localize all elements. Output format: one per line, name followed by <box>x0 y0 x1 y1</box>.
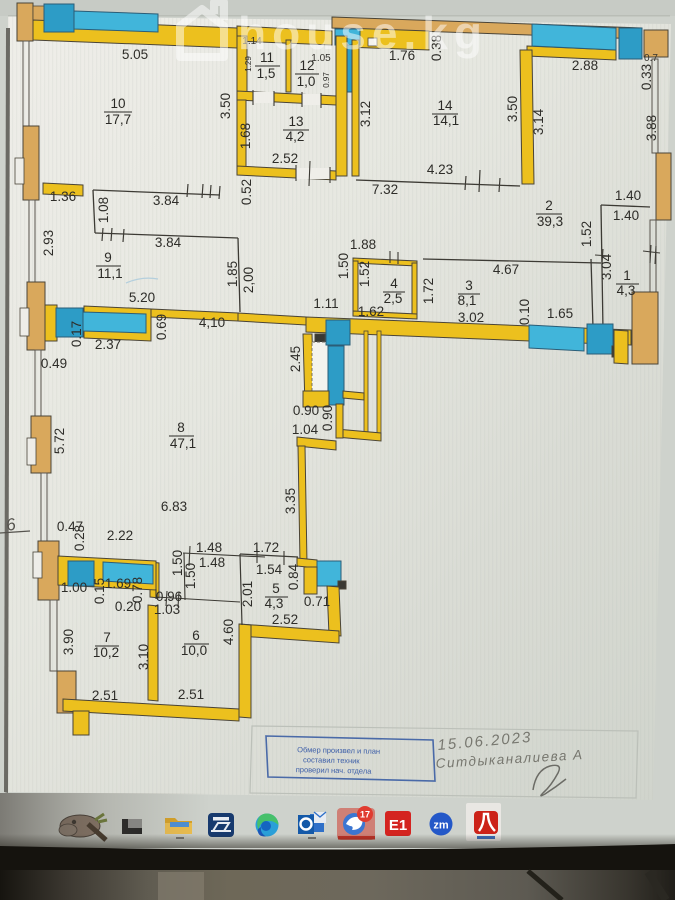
svg-text:1.72: 1.72 <box>421 278 436 304</box>
svg-text:1.50: 1.50 <box>336 253 351 279</box>
svg-text:3.84: 3.84 <box>153 193 180 208</box>
svg-text:17,7: 17,7 <box>105 112 131 127</box>
svg-text:1.00: 1.00 <box>61 580 87 595</box>
svg-text:E1: E1 <box>389 817 407 834</box>
svg-text:0.33: 0.33 <box>639 64 654 90</box>
svg-text:0.49: 0.49 <box>41 356 67 371</box>
svg-text:1.04: 1.04 <box>292 422 319 437</box>
svg-text:13: 13 <box>288 114 303 129</box>
svg-text:10,2: 10,2 <box>93 645 119 660</box>
svg-text:0.78: 0.78 <box>130 577 145 603</box>
svg-text:проверил нач. отдела: проверил нач. отдела <box>296 765 373 776</box>
svg-text:4,2: 4,2 <box>286 129 305 144</box>
svg-text:2,00: 2,00 <box>241 267 256 293</box>
svg-text:1.54: 1.54 <box>256 562 283 577</box>
svg-text:8,1: 8,1 <box>458 293 477 308</box>
svg-text:3.84: 3.84 <box>155 235 182 250</box>
svg-text:0.90: 0.90 <box>320 405 335 431</box>
svg-text:4,3: 4,3 <box>617 283 636 298</box>
svg-text:4,3: 4,3 <box>265 596 284 611</box>
svg-text:6.83: 6.83 <box>161 499 187 514</box>
svg-text:zm: zm <box>433 820 449 832</box>
svg-text:4,10: 4,10 <box>199 315 225 330</box>
svg-text:3.14: 3.14 <box>531 108 546 135</box>
svg-text:17: 17 <box>360 810 370 820</box>
svg-text:1.36: 1.36 <box>50 189 76 204</box>
svg-text:10,0: 10,0 <box>181 643 207 658</box>
svg-text:0.69: 0.69 <box>154 314 169 340</box>
svg-text:0.10: 0.10 <box>517 299 532 325</box>
svg-text:2: 2 <box>545 198 553 213</box>
svg-text:3.50: 3.50 <box>505 96 520 122</box>
svg-text:2.93: 2.93 <box>41 230 56 256</box>
svg-text:0.84: 0.84 <box>286 563 301 590</box>
svg-text:2.52: 2.52 <box>272 612 298 627</box>
svg-text:0.15: 0.15 <box>92 578 107 604</box>
svg-text:1: 1 <box>623 268 631 283</box>
svg-text:7.32: 7.32 <box>372 182 398 197</box>
svg-text:3.02: 3.02 <box>458 310 484 325</box>
svg-text:3.90: 3.90 <box>61 629 76 655</box>
svg-text:3.35: 3.35 <box>283 488 298 514</box>
svg-text:5.72: 5.72 <box>52 428 67 454</box>
svg-text:1.69: 1.69 <box>105 576 131 591</box>
svg-text:14,1: 14,1 <box>433 113 459 128</box>
svg-text:1.40: 1.40 <box>613 208 639 223</box>
svg-text:3.50: 3.50 <box>218 93 233 119</box>
svg-text:house.kg: house.kg <box>238 7 488 59</box>
svg-text:2.01: 2.01 <box>240 581 255 607</box>
svg-text:2.45: 2.45 <box>288 346 303 372</box>
svg-text:3.12: 3.12 <box>358 101 373 127</box>
svg-text:11,1: 11,1 <box>97 266 122 281</box>
svg-text:3.04: 3.04 <box>599 253 614 280</box>
svg-text:2.22: 2.22 <box>107 528 133 543</box>
svg-text:составил техник: составил техник <box>303 755 361 765</box>
svg-text:0.97: 0.97 <box>322 72 331 88</box>
svg-text:8: 8 <box>177 420 185 435</box>
svg-text:1.40: 1.40 <box>615 188 641 203</box>
svg-text:2.51: 2.51 <box>178 687 204 702</box>
svg-text:3.88: 3.88 <box>644 115 659 141</box>
svg-text:5.20: 5.20 <box>129 290 155 305</box>
svg-text:0.52: 0.52 <box>239 179 254 205</box>
svg-text:2,5: 2,5 <box>384 291 403 306</box>
svg-text:2.37: 2.37 <box>95 337 121 352</box>
svg-text:0.90: 0.90 <box>293 403 319 418</box>
svg-text:0.7: 0.7 <box>644 53 658 64</box>
svg-text:1.52: 1.52 <box>357 261 372 287</box>
svg-text:5.05: 5.05 <box>122 47 148 62</box>
svg-text:1.52: 1.52 <box>579 221 594 247</box>
svg-text:2.52: 2.52 <box>272 151 298 166</box>
svg-text:1.48: 1.48 <box>199 555 225 570</box>
svg-text:1.68: 1.68 <box>238 123 253 149</box>
svg-text:2.88: 2.88 <box>572 58 598 73</box>
svg-text:39,3: 39,3 <box>537 214 563 229</box>
svg-text:1,0: 1,0 <box>297 74 316 89</box>
svg-text:1.65: 1.65 <box>547 306 573 321</box>
svg-text:7: 7 <box>103 630 111 645</box>
svg-text:0.71: 0.71 <box>304 594 330 609</box>
svg-text:1.08: 1.08 <box>96 197 111 223</box>
svg-text:9: 9 <box>104 250 112 265</box>
svg-text:4: 4 <box>390 276 398 291</box>
svg-text:4.23: 4.23 <box>427 162 453 177</box>
svg-text:1,5: 1,5 <box>257 66 276 81</box>
svg-text:0.17: 0.17 <box>69 321 84 347</box>
svg-text:Обмер произвел и план: Обмер произвел и план <box>297 745 380 756</box>
svg-text:6: 6 <box>192 628 200 643</box>
svg-text:1.62: 1.62 <box>358 304 384 319</box>
svg-text:14: 14 <box>437 98 453 113</box>
svg-text:4.60: 4.60 <box>221 619 236 645</box>
svg-text:1.50: 1.50 <box>183 563 198 589</box>
svg-text:47,1: 47,1 <box>170 436 196 451</box>
svg-text:1.03: 1.03 <box>154 602 180 617</box>
svg-text:1.72: 1.72 <box>253 540 279 555</box>
svg-text:2.51: 2.51 <box>92 688 118 703</box>
svg-text:3.10: 3.10 <box>136 644 151 670</box>
svg-text:1.48: 1.48 <box>196 540 222 555</box>
svg-text:1.11: 1.11 <box>313 296 338 311</box>
svg-text:3: 3 <box>465 278 473 293</box>
svg-text:0.28: 0.28 <box>72 525 87 551</box>
svg-text:1.88: 1.88 <box>350 237 376 252</box>
svg-text:5: 5 <box>272 581 280 596</box>
svg-text:10: 10 <box>110 96 125 111</box>
svg-text:1.85: 1.85 <box>225 261 240 287</box>
svg-text:4.67: 4.67 <box>493 262 519 277</box>
